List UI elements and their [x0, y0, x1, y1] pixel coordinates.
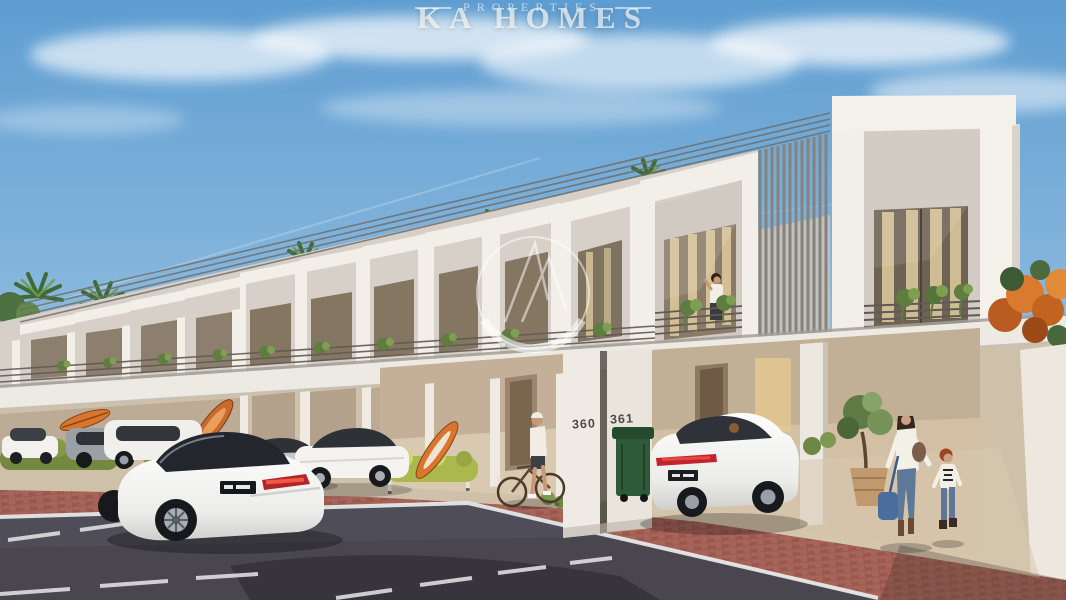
house-number-360: 360 — [572, 416, 597, 431]
wheelie-bin — [612, 427, 654, 502]
house-number-361: 361 — [610, 411, 635, 426]
townhouse-render: 360 361 KA HOMES PROPERTIES — [0, 0, 1066, 600]
scene-canvas — [0, 0, 1066, 600]
